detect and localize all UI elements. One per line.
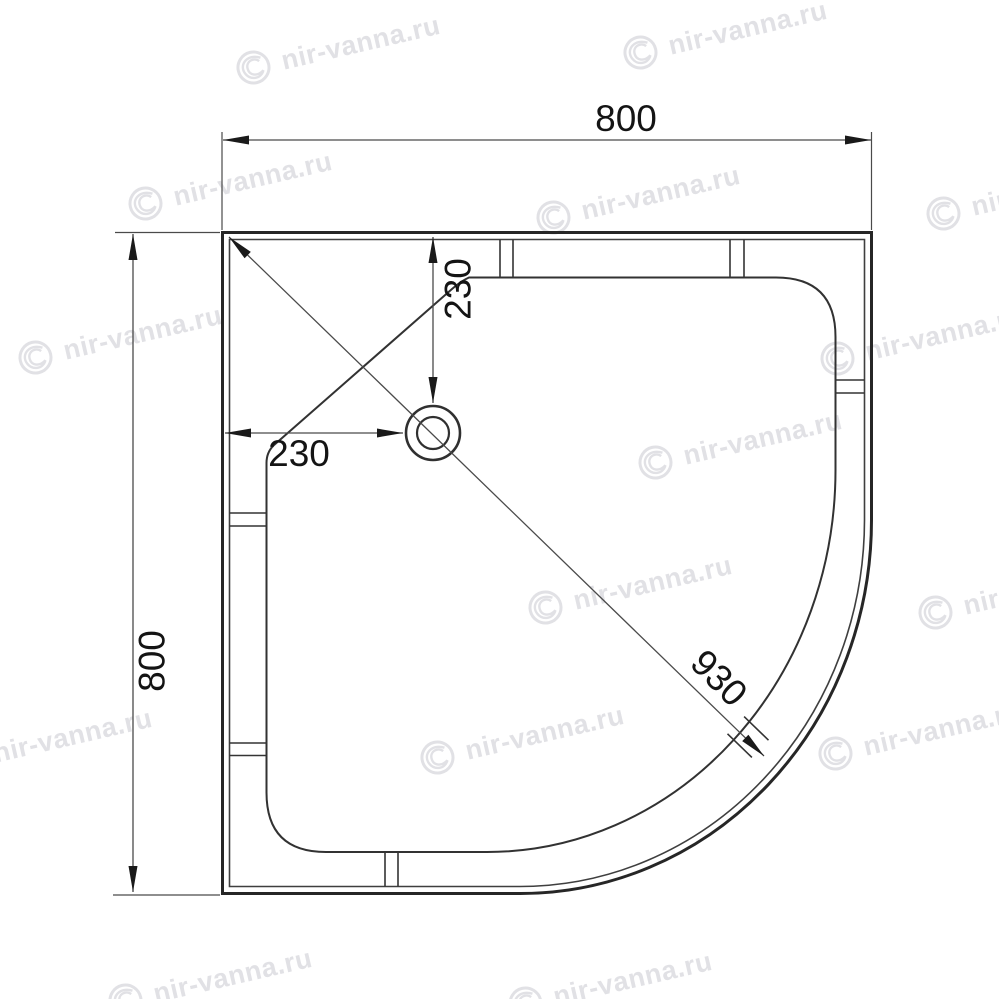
drain [406, 406, 460, 460]
arrowhead-bottom [429, 377, 438, 403]
arrowhead-right [845, 136, 871, 145]
dim-overall-depth: 800 [113, 233, 220, 896]
rim-joint-top-1 [500, 240, 513, 278]
shower-tray-drawing: 800 800 230 230 930 [0, 0, 999, 999]
rim-joint-marks [230, 240, 865, 887]
technical-drawing-page: nir-vanna.ru nir-vanna.ru nir-vanna.ru n… [0, 0, 999, 999]
dimension-line [229, 237, 764, 756]
extension-line [222, 132, 872, 230]
dim-overall-width: 800 [222, 98, 872, 230]
rim-joint-top-2 [730, 240, 744, 278]
arrowhead-top [429, 237, 438, 263]
dim-label-diagonal: 930 [683, 642, 756, 715]
dim-drain-offset-horizontal: 230 [225, 429, 403, 475]
arrowhead-bottom [129, 866, 138, 892]
dim-label-drain-horizontal: 230 [268, 433, 330, 474]
arrowhead-left [223, 136, 249, 145]
drain-outer-circle [406, 406, 460, 460]
rim-joint-bottom [385, 852, 398, 887]
dim-label-width: 800 [595, 98, 657, 139]
dim-label-drain-vertical: 230 [438, 258, 479, 320]
drain-inner-circle [417, 417, 449, 449]
arrowhead-arc [742, 735, 764, 756]
rim-joint-left-1 [230, 513, 267, 526]
tray-outline [223, 233, 872, 894]
tray-inner-rim-line [230, 240, 865, 887]
arrowhead-top [129, 234, 138, 260]
rim-joint-right [836, 380, 865, 393]
dim-drain-offset-vertical: 230 [429, 237, 479, 403]
extension-line [113, 233, 220, 896]
arrowhead-right [377, 429, 403, 438]
tray-basin-edge [267, 278, 836, 853]
dim-label-depth: 800 [132, 630, 173, 692]
rim-joint-left-2 [230, 743, 267, 756]
tray-outer-edge [223, 233, 872, 894]
dim-diagonal: 930 [229, 237, 764, 756]
